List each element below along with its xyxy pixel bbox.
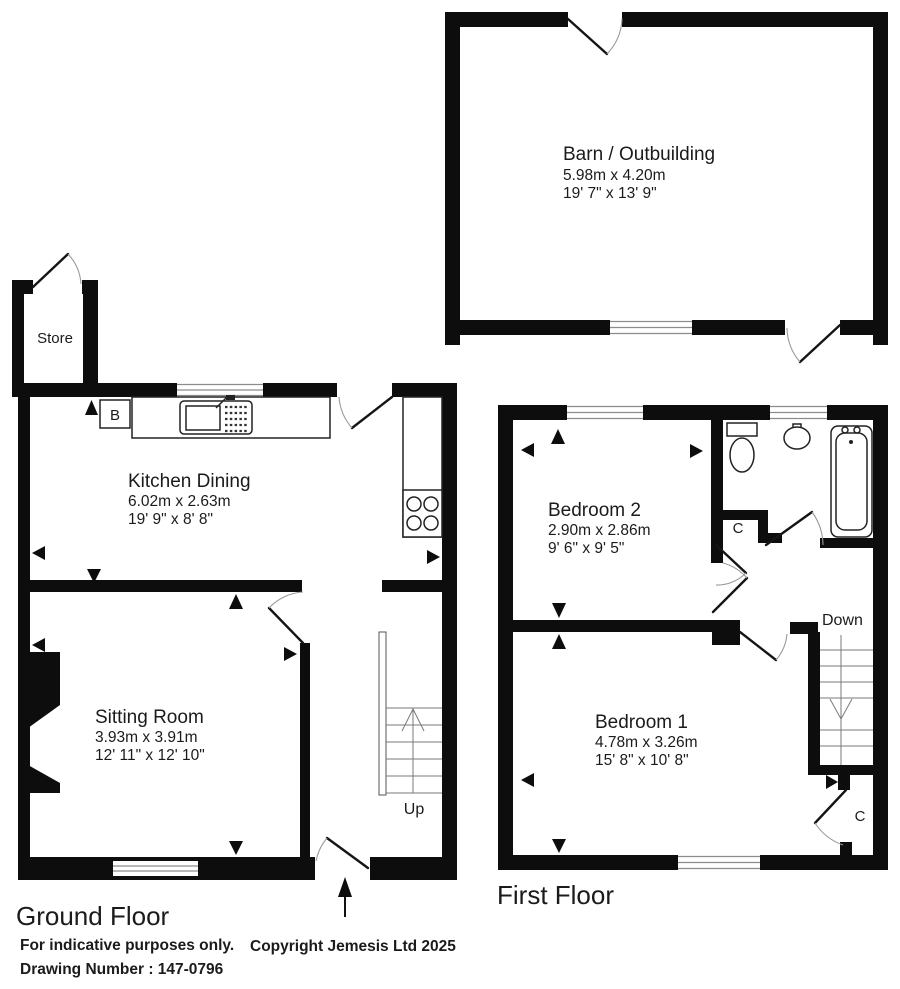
barn-bottom-door — [787, 325, 840, 362]
room-label-kitchen: Kitchen Dining 6.02m x 2.63m 19' 9" x 8'… — [128, 471, 251, 528]
kitchen-top-wall-right — [392, 383, 457, 397]
ground-floor-plan: Store — [12, 254, 457, 917]
measure-arrow-right-icon — [284, 647, 297, 661]
first-left-wall — [498, 405, 513, 870]
boiler-label: B — [110, 407, 120, 424]
barn-top-door — [568, 19, 622, 54]
first-top-wall-mid — [643, 405, 770, 420]
front-door — [316, 838, 368, 868]
barn-bottom-wall-right — [840, 320, 888, 335]
store-label: Store — [37, 330, 73, 347]
staircase-down: Down — [820, 612, 873, 765]
measure-arrow-left-icon — [521, 773, 534, 787]
barn-right-wall — [873, 12, 888, 345]
kitchen-imperial: 19' 9" x 8' 8" — [128, 511, 213, 528]
barn-top-wall-left — [445, 12, 568, 27]
bedroom1-door — [740, 632, 787, 660]
ground-bottom-wall-mid — [198, 857, 315, 880]
cupboard1-label: C — [733, 520, 744, 537]
room-label-bedroom2: Bedroom 2 2.90m x 2.86m 9' 6" x 9' 5" — [548, 500, 651, 557]
chimney-breast-lower — [28, 765, 60, 793]
barn-metric: 5.98m x 4.20m — [563, 167, 666, 184]
cupboard2-door — [815, 790, 846, 845]
sitting-right-wall — [300, 643, 310, 857]
bedroom2-metric: 2.90m x 2.86m — [548, 522, 651, 539]
bedroom2-window — [567, 405, 643, 420]
bathtub — [831, 426, 872, 537]
first-bottom-wall-right — [760, 855, 888, 870]
sitting-name: Sitting Room — [95, 707, 204, 728]
landing-wall-pier — [712, 620, 740, 645]
bathroom-door — [766, 512, 823, 545]
kitchen-top-wall-left — [12, 383, 177, 397]
sitting-hall-door — [269, 592, 303, 643]
barn-top-wall-right — [622, 12, 888, 27]
kitchen-metric: 6.02m x 2.63m — [128, 493, 231, 510]
measure-arrow-right-icon — [427, 550, 440, 564]
stair-rail — [379, 632, 386, 795]
room-label-barn: Barn / Outbuilding 5.98m x 4.20m 19' 7" … — [563, 144, 715, 202]
barn-imperial: 19' 7" x 13' 9" — [563, 185, 657, 202]
bathroom-bottom-wall-right — [820, 538, 873, 548]
measure-arrow-up-icon — [551, 429, 565, 444]
kitchen-right-counter — [403, 397, 442, 537]
measure-arrow-right-icon — [826, 775, 838, 789]
bedroom1-imperial: 15' 8" x 10' 8" — [595, 752, 689, 769]
up-label: Up — [404, 801, 425, 818]
titles: Ground Floor First Floor For indicative … — [16, 880, 614, 978]
first-bottom-wall-left — [498, 855, 678, 870]
first-floor-plan: Down C C Bedroom 2 2.90m x 2.86m 9' 6" x… — [498, 405, 888, 870]
bedroom-divider-wall — [513, 620, 712, 632]
store-top-wall-right — [82, 280, 98, 294]
cupboard2-label: C — [855, 808, 866, 825]
sitting-metric: 3.93m x 3.91m — [95, 729, 198, 746]
kitchen-top-wall-mid — [263, 383, 337, 397]
measure-arrow-down-icon — [229, 841, 243, 855]
barn-bottom-wall-left — [445, 320, 610, 335]
ground-floor-title: Ground Floor — [16, 901, 170, 931]
store-top-wall-left — [12, 280, 33, 294]
measure-arrow-left-icon — [521, 443, 534, 457]
barn-bottom-wall-mid — [692, 320, 785, 335]
measure-arrow-right-icon — [690, 444, 703, 458]
measure-arrow-left-icon — [32, 546, 45, 560]
barn-window — [610, 320, 692, 335]
first-top-wall-right — [827, 405, 888, 420]
ground-bottom-wall-right — [370, 857, 457, 880]
staircase-up: Up — [379, 632, 442, 818]
copyright-note: Copyright Jemesis Ltd 2025 — [250, 938, 456, 955]
floorplan-page: Barn / Outbuilding 5.98m x 4.20m 19' 7" … — [0, 0, 900, 989]
chimney-breast-upper — [28, 652, 60, 728]
drawing-number: Drawing Number : 147-0796 — [20, 961, 224, 978]
hall-top-wall — [382, 580, 457, 592]
measure-arrow-down-icon — [552, 603, 566, 618]
bedroom1-window — [678, 855, 760, 870]
bathroom-window — [770, 405, 827, 420]
room-label-bedroom1: Bedroom 1 4.78m x 3.26m 15' 8" x 10' 8" — [595, 712, 698, 769]
first-right-wall — [873, 405, 888, 870]
boiler: B — [100, 400, 130, 428]
kitchen-back-door — [339, 397, 392, 428]
sitting-window — [113, 857, 198, 880]
bedroom1-metric: 4.78m x 3.26m — [595, 734, 698, 751]
cupboard2-top-stub — [838, 773, 850, 790]
store-right-wall — [83, 292, 98, 385]
bedroom2-bathroom-wall — [711, 420, 723, 563]
kitchen-name: Kitchen Dining — [128, 471, 251, 492]
measure-arrow-left-icon — [32, 638, 45, 652]
toilet — [727, 423, 757, 472]
first-top-wall-left — [498, 405, 567, 420]
measure-arrow-up-icon — [229, 594, 243, 609]
down-label: Down — [822, 612, 863, 629]
measure-arrow-up-icon — [85, 400, 98, 415]
hob — [403, 490, 442, 537]
bedroom2-name: Bedroom 2 — [548, 500, 641, 521]
entrance-arrow-icon — [338, 877, 352, 917]
kitchen-sink — [180, 395, 252, 434]
barn-name: Barn / Outbuilding — [563, 144, 715, 165]
room-label-sitting: Sitting Room 3.93m x 3.91m 12' 11" x 12'… — [95, 707, 205, 764]
ground-right-wall — [442, 383, 457, 880]
store-left-wall — [12, 280, 24, 397]
bedroom1-name: Bedroom 1 — [595, 712, 688, 733]
indicative-note: For indicative purposes only. — [20, 937, 234, 954]
store-room: Store — [12, 254, 98, 397]
floorplan-svg: Barn / Outbuilding 5.98m x 4.20m 19' 7" … — [0, 0, 900, 989]
sitting-room: Sitting Room 3.93m x 3.91m 12' 11" x 12'… — [28, 592, 310, 857]
bedroom2-imperial: 9' 6" x 9' 5" — [548, 540, 624, 557]
ground-bottom-wall-left — [18, 857, 113, 880]
wash-basin — [784, 424, 810, 449]
measure-arrow-up-icon — [552, 634, 566, 649]
kitchen-window — [177, 383, 263, 397]
barn-left-wall — [445, 12, 460, 345]
barn-plan: Barn / Outbuilding 5.98m x 4.20m 19' 7" … — [445, 12, 888, 362]
stairwell-left-wall — [808, 632, 820, 765]
sitting-imperial: 12' 11" x 12' 10" — [95, 747, 205, 764]
first-floor-title: First Floor — [497, 880, 614, 910]
ground-left-wall — [18, 383, 30, 880]
store-door — [33, 254, 81, 287]
kitchen-sitting-wall — [18, 580, 302, 592]
kitchen-counter — [132, 395, 330, 438]
measure-arrow-down-icon — [552, 839, 566, 853]
